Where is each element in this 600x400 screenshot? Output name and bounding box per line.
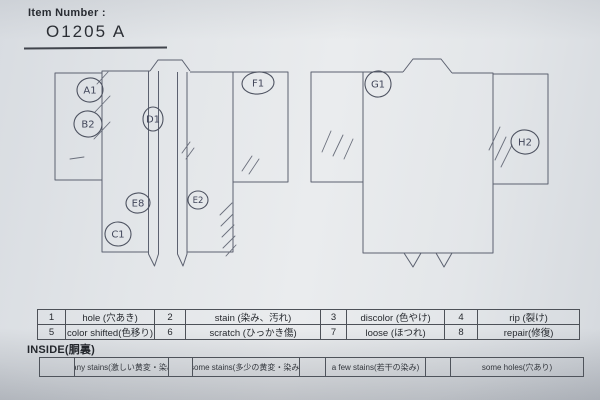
front-mark-b2-text: B2 — [81, 120, 94, 131]
legend-code-7: 7 — [321, 325, 347, 340]
legend-code-5: 5 — [38, 325, 66, 340]
legend-code-1: 1 — [38, 310, 66, 325]
inside-section-title: INSIDE(胴裏) — [27, 341, 95, 357]
inside-option-some-stains: some stains(多少の黄変・染み) — [193, 357, 300, 377]
front-mark-e8: E8 — [125, 192, 150, 214]
inside-checkbox-cell-3 — [300, 357, 326, 377]
legend-label-stain: stain (染み、汚れ) — [186, 310, 321, 325]
legend-row-1: 1 hole (穴あき) 2 stain (染み、汚れ) 3 discolor … — [38, 310, 580, 325]
legend-label-repair: repair(修復) — [478, 325, 580, 340]
back-mark-g1: G1 — [363, 69, 392, 98]
condition-sheet-photo: Item Number : O1205 A A1 — [0, 0, 600, 400]
back-mark-h2-text: H2 — [518, 138, 532, 149]
legend-label-loose: loose (ほつれ) — [347, 325, 445, 340]
back-mark-g1-text: G1 — [371, 80, 385, 91]
legend-code-8: 8 — [445, 325, 478, 340]
front-mark-c1: C1 — [104, 221, 132, 247]
inside-option-some-holes: some holes(穴あり) — [451, 357, 584, 377]
inside-checkbox-cell-2 — [169, 357, 193, 377]
legend-code-3: 3 — [321, 310, 347, 325]
front-mark-e2-text: E2 — [193, 196, 204, 206]
legend-label-color-shifted: color shifted(色移り) — [66, 325, 155, 340]
front-mark-d1-text: D1 — [146, 115, 160, 126]
legend-code-2: 2 — [155, 310, 186, 325]
front-mark-f1: F1 — [241, 71, 275, 96]
legend-label-scratch: scratch (ひっかき傷) — [186, 325, 321, 340]
back-mark-h2: H2 — [510, 129, 540, 156]
condition-legend-table: 1 hole (穴あき) 2 stain (染み、汚れ) 3 discolor … — [37, 309, 580, 340]
front-mark-f1-text: F1 — [252, 79, 264, 90]
front-mark-d1: D1 — [143, 107, 163, 131]
front-mark-a1-text: A1 — [83, 86, 96, 97]
front-mark-e2: E2 — [188, 191, 208, 209]
legend-label-rip: rip (裂け) — [478, 310, 580, 325]
inside-condition-row: many stains(激しい黄変・染み) some stains(多少の黄変・… — [39, 357, 584, 377]
legend-code-4: 4 — [445, 310, 478, 325]
legend-label-discolor: discolor (色やけ) — [347, 310, 445, 325]
inside-checkbox-cell-4 — [426, 357, 451, 377]
legend-label-hole: hole (穴あき) — [66, 310, 155, 325]
kimono-back-outline — [311, 59, 548, 267]
inside-option-many-stains: many stains(激しい黄変・染み) — [75, 357, 169, 377]
front-mark-c1-text: C1 — [111, 230, 124, 241]
legend-code-6: 6 — [155, 325, 186, 340]
front-mark-e8-text: E8 — [132, 199, 145, 210]
kimono-condition-diagram: A1 B2 D1 E8 E2 C1 F1 G1 — [0, 0, 600, 400]
legend-row-2: 5 color shifted(色移り) 6 scratch (ひっかき傷) 7… — [38, 325, 580, 340]
inside-checkbox-cell-1 — [39, 357, 75, 377]
inside-option-a-few-stains: a few stains(若干の染み) — [326, 357, 426, 377]
